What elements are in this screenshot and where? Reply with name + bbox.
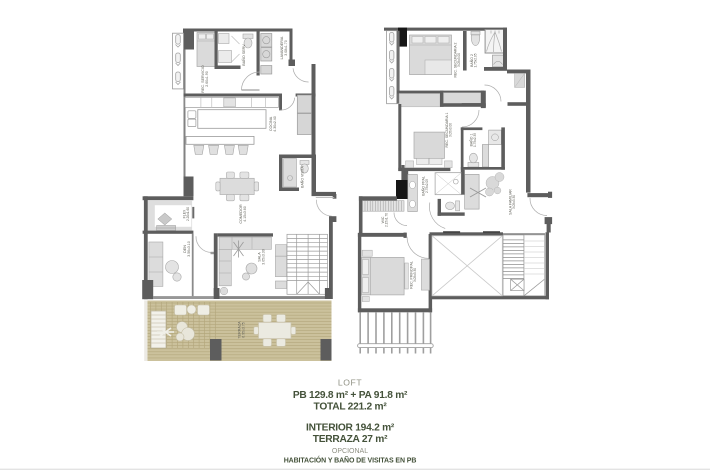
svg-text:3.05x3.00: 3.05x3.00 xyxy=(449,123,453,137)
svg-text:1.75x2.05: 1.75x2.05 xyxy=(473,53,477,67)
svg-text:3.05x3.00: 3.05x3.00 xyxy=(457,53,461,67)
svg-text:1.75x2.35: 1.75x2.35 xyxy=(473,133,477,147)
svg-text:INTERIOR 194.2 m²: INTERIOR 194.2 m² xyxy=(306,423,395,434)
svg-text:3.08x1.70: 3.08x1.70 xyxy=(284,40,288,55)
svg-text:3.05x3.30: 3.05x3.30 xyxy=(512,195,516,209)
svg-text:TERRAZA 27 m²: TERRAZA 27 m² xyxy=(313,434,388,445)
svg-text:6.95x3.75: 6.95x3.75 xyxy=(242,322,246,337)
svg-text:TOTAL 221.2 m²: TOTAL 221.2 m² xyxy=(314,402,388,413)
svg-text:LOFT: LOFT xyxy=(338,378,363,388)
svg-text:OPCIONAL: OPCIONAL xyxy=(332,448,368,455)
svg-text:PB 129.8 m² + PA 91.8 m²: PB 129.8 m² + PA 91.8 m² xyxy=(293,390,408,401)
svg-text:2.60x1.90: 2.60x1.90 xyxy=(205,71,209,86)
svg-text:3.56x3.10: 3.56x3.10 xyxy=(187,241,191,256)
svg-text:4.15x3.60: 4.15x3.60 xyxy=(243,206,247,221)
svg-text:BAÑO SERV: BAÑO SERV xyxy=(241,44,246,66)
svg-text:2.15x1.70: 2.15x1.70 xyxy=(385,213,389,227)
svg-text:2.20x1.60: 2.20x1.60 xyxy=(186,207,190,221)
svg-text:2.75x2.05: 2.75x2.05 xyxy=(425,179,429,193)
svg-text:4.30x2.40: 4.30x2.40 xyxy=(273,116,277,131)
svg-text:HABITACIÓN Y BAÑO DE VISITAS E: HABITACIÓN Y BAÑO DE VISITAS EN PB xyxy=(284,456,417,465)
svg-text:3.05x3.30: 3.05x3.30 xyxy=(262,249,266,264)
svg-text:BAÑO VISITA: BAÑO VISITA xyxy=(300,165,305,187)
svg-text:3.05x3.30: 3.05x3.30 xyxy=(413,268,417,282)
